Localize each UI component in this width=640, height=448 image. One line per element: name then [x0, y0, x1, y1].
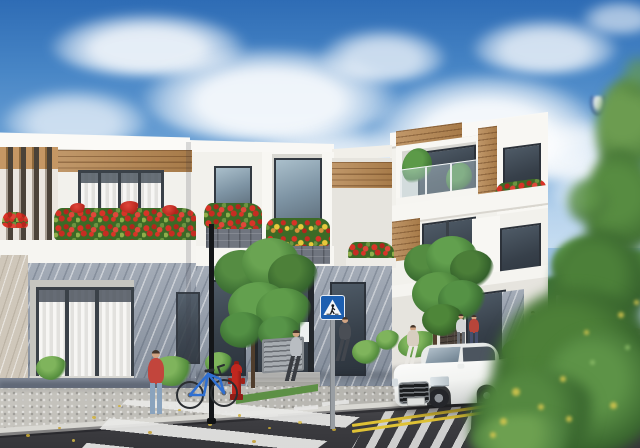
fallen-leaf [268, 427, 271, 429]
pedestrian-crossing-icon [321, 296, 344, 319]
car-headlight [392, 378, 398, 386]
flower-cluster [70, 203, 86, 213]
bicycle [176, 350, 238, 410]
bokeh-flower [634, 300, 639, 305]
car-headlight [430, 376, 449, 387]
lamp-post-base [207, 418, 216, 424]
bokeh-leaf [590, 360, 595, 365]
bicycle-handlebar [218, 365, 224, 375]
fallen-leaf [398, 420, 402, 423]
flower-cluster [162, 205, 178, 215]
flower-planter [2, 212, 28, 228]
floor-slab [0, 240, 196, 265]
person-torso [339, 323, 350, 341]
fallen-leaf [148, 431, 152, 434]
fallen-leaf [252, 440, 256, 443]
person-walking [288, 330, 304, 380]
window-transom [81, 173, 161, 183]
bokeh-flower [610, 402, 617, 409]
fallen-leaf [298, 421, 302, 424]
person-torso [407, 330, 418, 346]
person-torso [456, 319, 466, 333]
bokeh-flower [584, 330, 589, 335]
person-legs [150, 383, 163, 414]
window-transom [39, 290, 131, 302]
bokeh-flower [490, 432, 496, 438]
architectural-render-scene [0, 0, 640, 448]
bokeh-leaf [625, 345, 630, 350]
bokeh-flower [538, 404, 544, 410]
car-mirror [457, 364, 464, 369]
louver-screen [0, 147, 58, 169]
person-torso [469, 319, 479, 333]
person-legs [285, 356, 301, 381]
bokeh-flower [500, 418, 507, 425]
person-torso [290, 337, 303, 357]
fallen-leaf [26, 434, 30, 437]
fallen-leaf [72, 439, 75, 442]
bicycle-frame [190, 374, 224, 395]
wood-cladding [332, 162, 392, 188]
person-head [293, 330, 300, 337]
window-mullion [95, 290, 99, 377]
bicycle-seat [206, 370, 213, 371]
person-woman-phone [146, 350, 166, 414]
fallen-leaf [58, 427, 61, 429]
person-legs [335, 339, 349, 361]
person-suit [338, 317, 352, 361]
person-head [152, 350, 160, 358]
hydrant-nozzle [241, 378, 245, 384]
person-torso [148, 358, 164, 384]
bokeh-flower [512, 388, 520, 396]
person-head [342, 317, 348, 323]
shrub [36, 356, 68, 380]
fallen-leaf [92, 416, 96, 419]
bokeh-flower [566, 416, 572, 422]
cloud [318, 28, 448, 82]
wood-cladding [58, 150, 192, 172]
marble-pilaster [0, 255, 28, 388]
foreground-foliage [568, 180, 608, 224]
fallen-leaf [118, 405, 121, 407]
fallen-leaf [238, 414, 241, 417]
sign-pole [330, 317, 335, 429]
car-license-plate [407, 397, 425, 406]
flower-cluster [120, 201, 140, 213]
bokeh-flower [560, 376, 566, 382]
bokeh-flower [618, 312, 624, 318]
